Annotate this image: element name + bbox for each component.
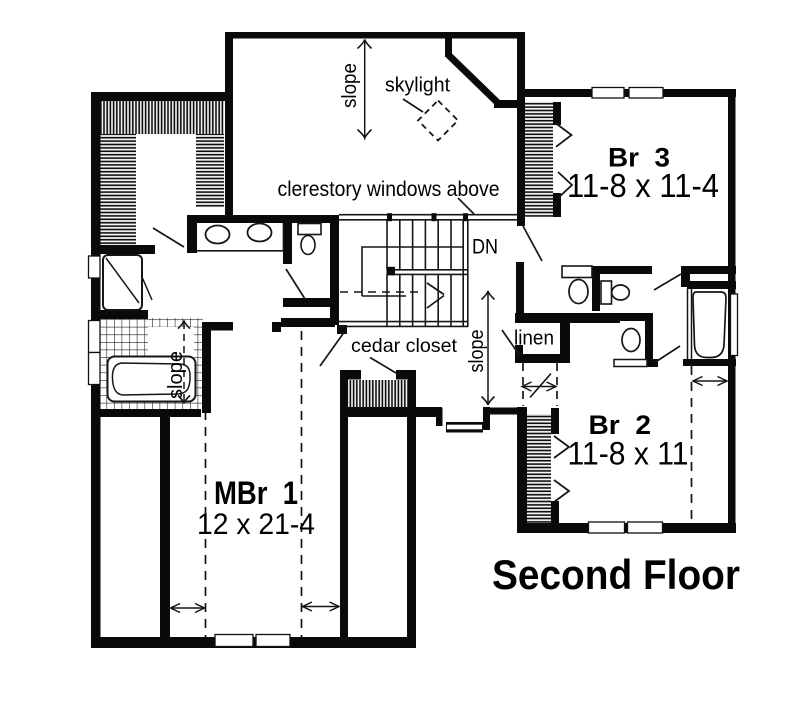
svg-text:cedar closet: cedar closet — [351, 335, 458, 357]
svg-text:clerestory windows above: clerestory windows above — [278, 178, 500, 201]
svg-text:MBr 1: MBr 1 — [214, 475, 298, 511]
svg-text:slope: slope — [466, 330, 488, 373]
svg-text:11-8 x 11: 11-8 x 11 — [568, 436, 689, 472]
svg-text:skylight: skylight — [385, 75, 450, 97]
svg-text:slope: slope — [339, 63, 361, 108]
svg-text:DN: DN — [472, 236, 498, 259]
svg-text:linen: linen — [514, 328, 554, 350]
svg-text:11-8 x 11-4: 11-8 x 11-4 — [567, 167, 719, 204]
svg-text:Second Floor: Second Floor — [492, 551, 740, 598]
svg-text:slope: slope — [165, 351, 187, 399]
svg-text:12 x 21-4: 12 x 21-4 — [197, 508, 315, 541]
